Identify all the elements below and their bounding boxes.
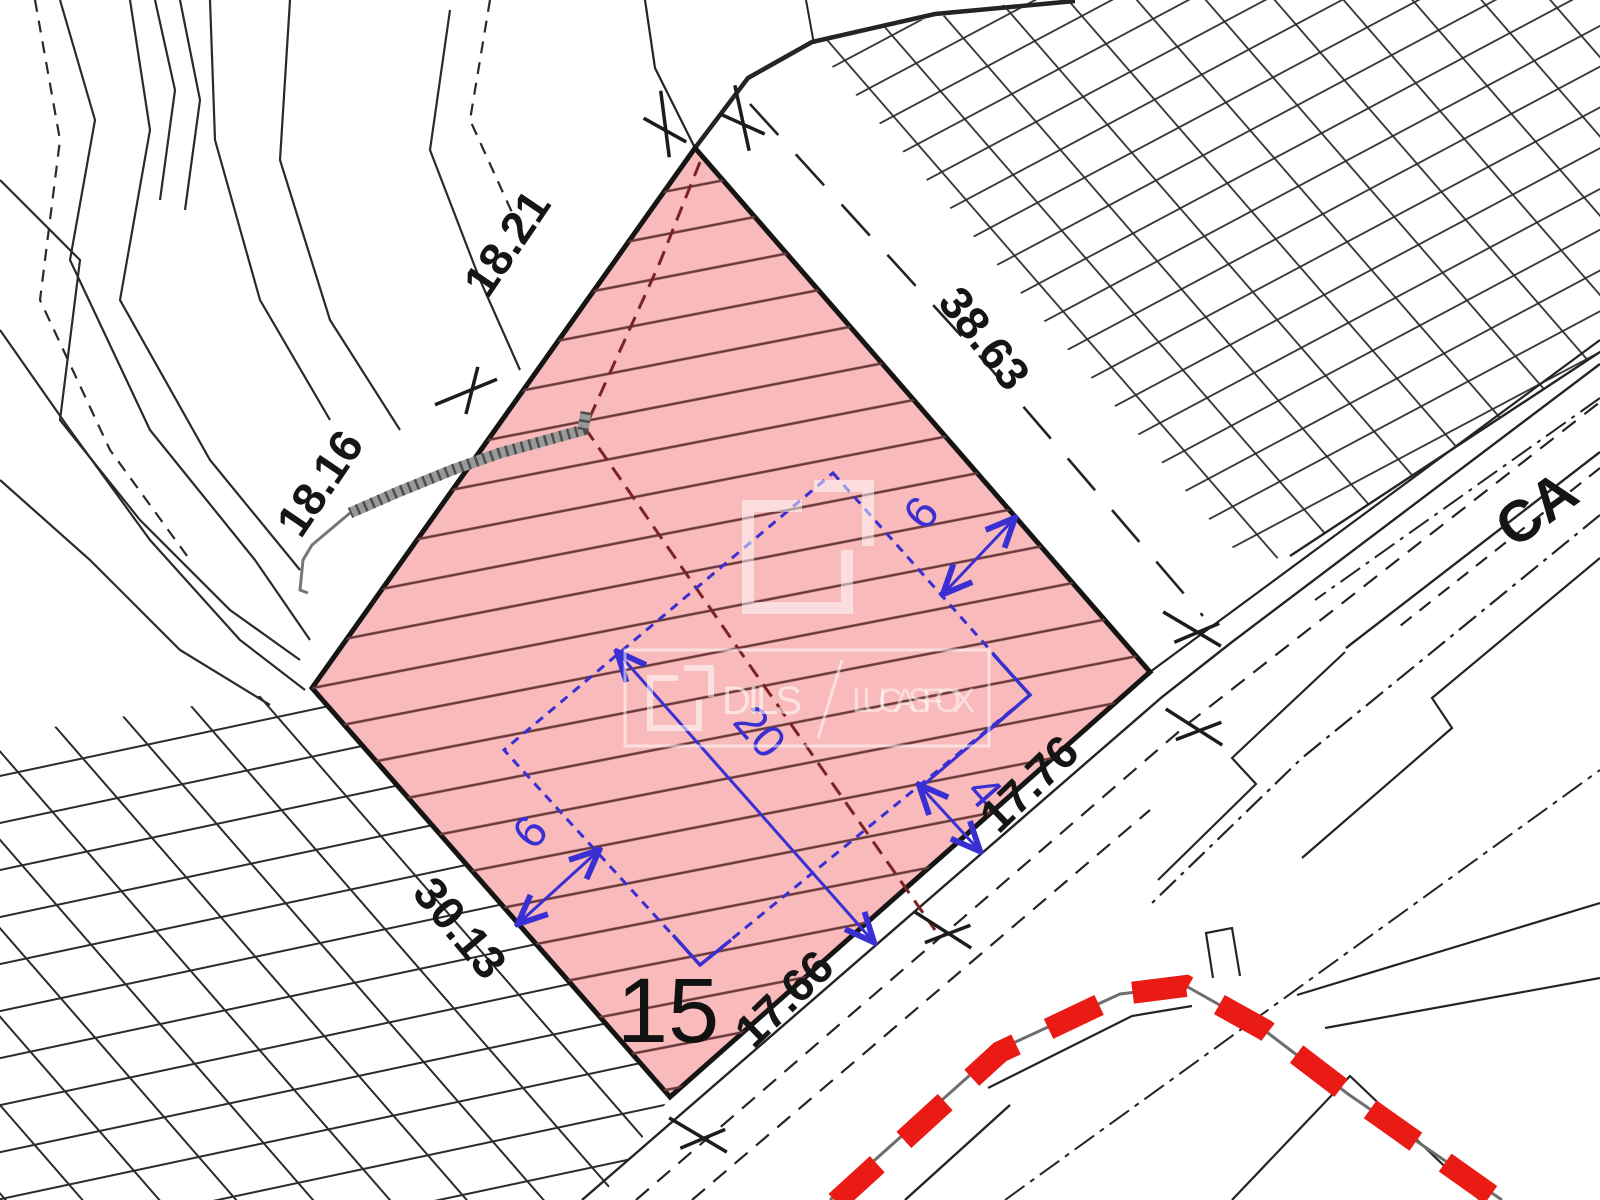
- plot-number: 15: [617, 960, 719, 1062]
- red-boundary-line: [830, 986, 1505, 1200]
- watermark-brand-right: LUCAS FOX: [852, 682, 980, 720]
- watermark-brand-left: DILS: [722, 679, 810, 723]
- dim-label-nw-upper: 18.21: [453, 181, 560, 306]
- site-plan-svg: 6 6 20 4 18.21 18.16 38.63 30.13 17.66 1…: [0, 0, 1600, 1200]
- dim-label-nw-lower: 18.16: [266, 421, 373, 546]
- site-plan: 6 6 20 4 18.21 18.16 38.63 30.13 17.66 1…: [0, 0, 1600, 1200]
